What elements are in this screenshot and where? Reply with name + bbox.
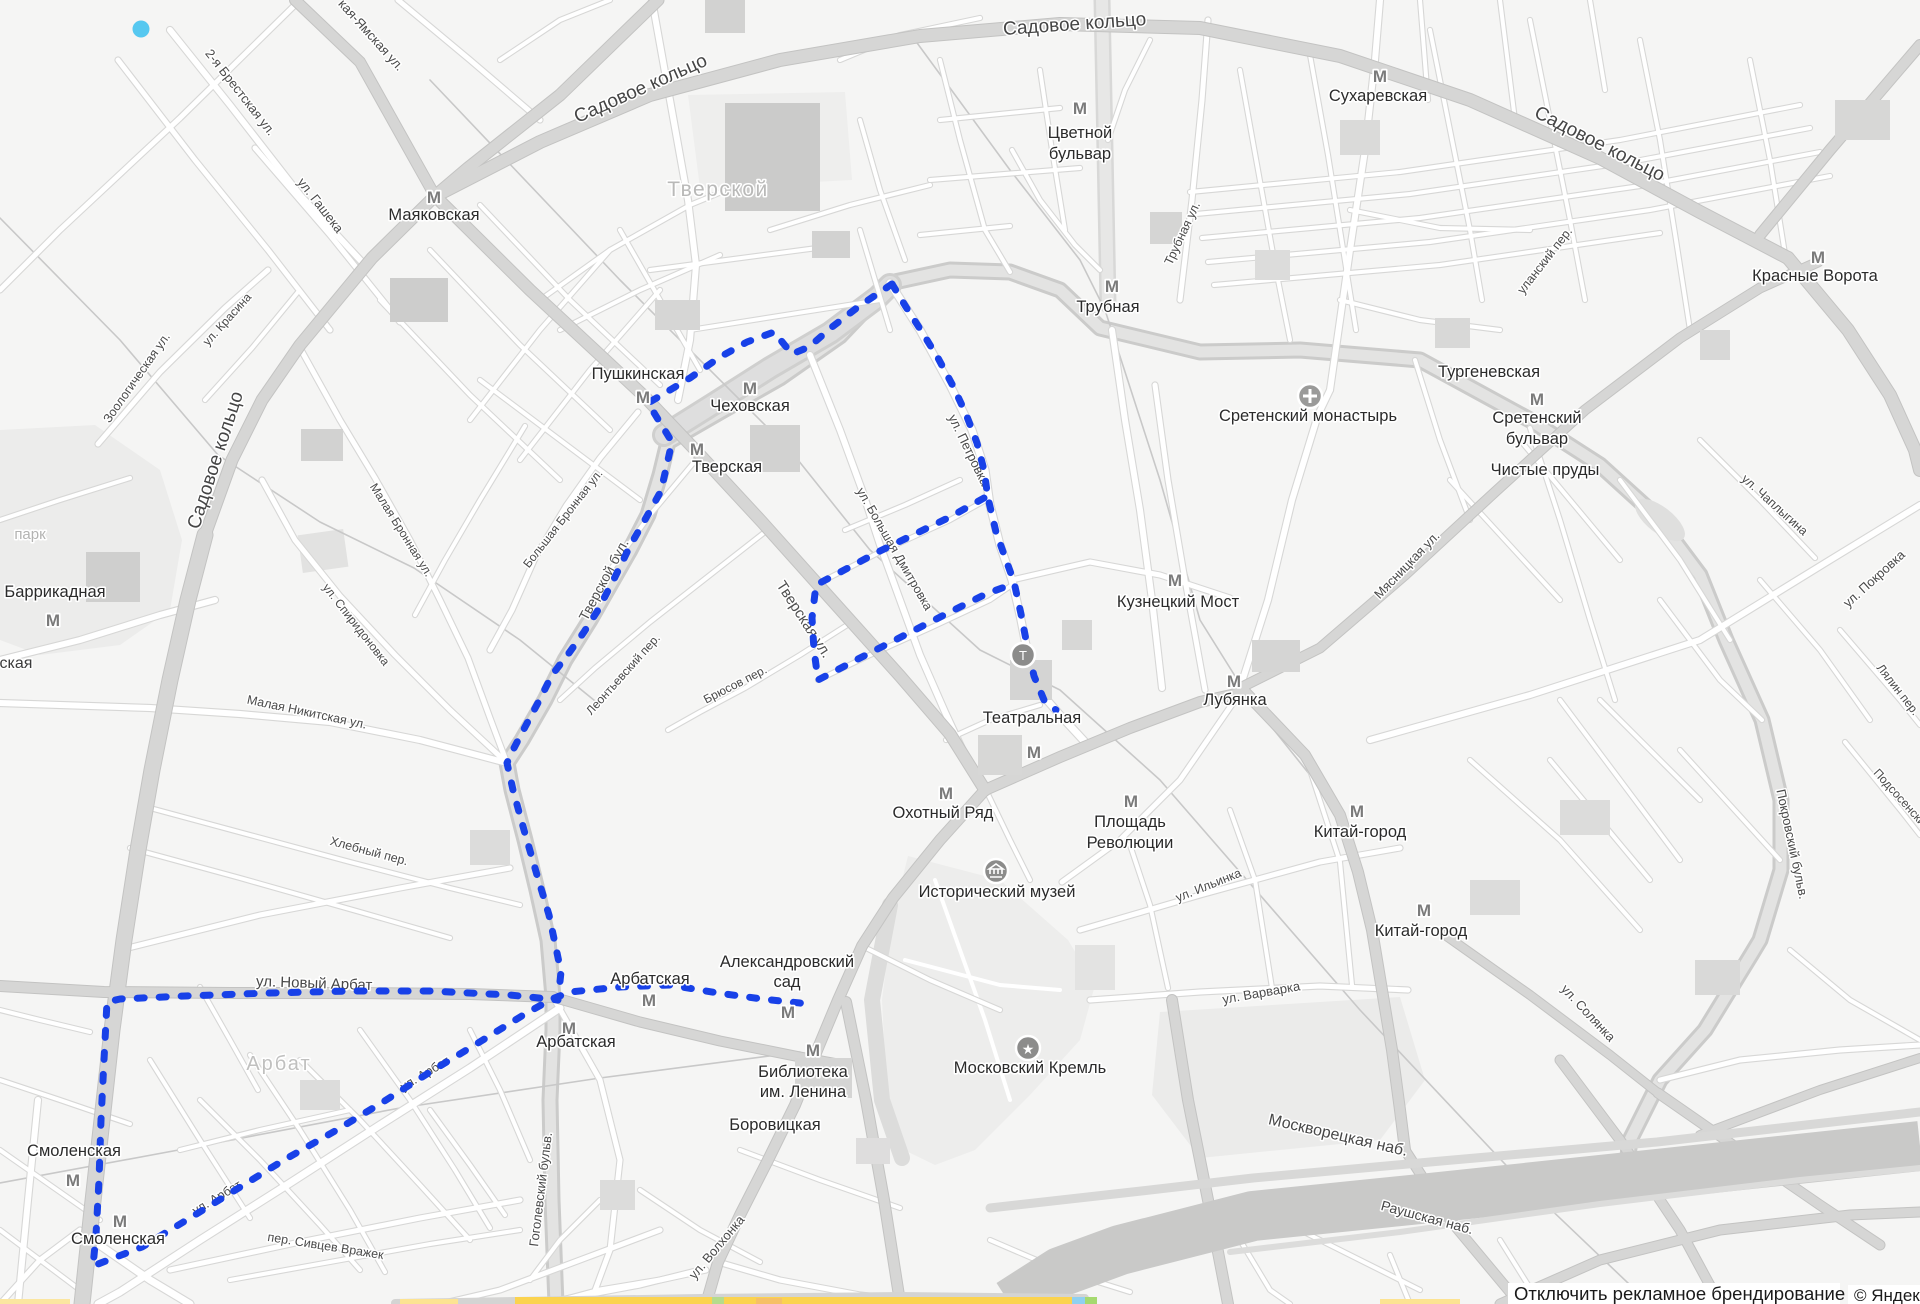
- svg-text:Т: Т: [1019, 648, 1027, 663]
- svg-text:М: М: [636, 388, 650, 407]
- svg-text:М: М: [1811, 248, 1825, 267]
- svg-text:Китай-город: Китай-город: [1314, 823, 1407, 841]
- svg-text:Театральная: Театральная: [983, 709, 1082, 727]
- svg-text:М: М: [690, 440, 704, 459]
- svg-text:М: М: [1168, 571, 1182, 590]
- svg-text:М: М: [1417, 901, 1431, 920]
- svg-text:Трубная: Трубная: [1076, 298, 1139, 316]
- svg-text:Пушкинская: Пушкинская: [592, 365, 685, 383]
- svg-text:М: М: [642, 991, 656, 1010]
- svg-text:Охотный Ряд: Охотный Ряд: [893, 804, 994, 822]
- svg-text:М: М: [1227, 672, 1241, 691]
- svg-text:Александровский: Александровский: [720, 953, 854, 971]
- svg-text:Арбат: Арбат: [246, 1053, 311, 1075]
- svg-text:М: М: [66, 1171, 80, 1190]
- svg-text:М: М: [1073, 99, 1087, 118]
- svg-text:М: М: [939, 784, 953, 803]
- svg-text:Кузнецкий Мост: Кузнецкий Мост: [1117, 593, 1240, 611]
- svg-text:Революции: Революции: [1087, 834, 1174, 852]
- svg-text:бульвар: бульвар: [1049, 145, 1111, 163]
- svg-text:М: М: [1350, 802, 1364, 821]
- svg-text:Тверской: Тверской: [667, 178, 769, 201]
- svg-text:М: М: [806, 1041, 820, 1060]
- svg-text:Чеховская: Чеховская: [710, 397, 790, 415]
- svg-text:М: М: [113, 1212, 127, 1231]
- svg-text:Цветной: Цветной: [1048, 124, 1112, 142]
- svg-text:© Яндекс: © Яндекс: [1854, 1286, 1920, 1304]
- svg-text:Чистые пруды: Чистые пруды: [1491, 461, 1600, 479]
- svg-text:Сретенский монастырь: Сретенский монастырь: [1219, 407, 1397, 425]
- svg-text:М: М: [1373, 67, 1387, 86]
- svg-text:М: М: [1105, 277, 1119, 296]
- svg-text:Сретенский: Сретенский: [1492, 409, 1581, 427]
- svg-text:Маяковская: Маяковская: [388, 206, 479, 224]
- svg-text:Боровицкая: Боровицкая: [729, 1116, 820, 1134]
- svg-text:Смоленская: Смоленская: [27, 1142, 121, 1160]
- svg-text:сад: сад: [773, 973, 800, 991]
- svg-text:Сухаревская: Сухаревская: [1329, 87, 1427, 105]
- svg-text:парк: парк: [14, 526, 46, 543]
- svg-text:Московский Кремль: Московский Кремль: [954, 1059, 1107, 1077]
- svg-text:Баррикадная: Баррикадная: [4, 583, 105, 601]
- svg-text:ская: ская: [0, 655, 32, 672]
- svg-text:★: ★: [1022, 1041, 1035, 1057]
- svg-text:Исторический музей: Исторический музей: [919, 883, 1076, 901]
- svg-text:М: М: [1124, 792, 1138, 811]
- svg-text:Арбатская: Арбатская: [610, 970, 689, 988]
- svg-text:Арбатская: Арбатская: [536, 1033, 615, 1051]
- svg-text:Тверская: Тверская: [692, 458, 762, 476]
- svg-text:бульвар: бульвар: [1506, 430, 1568, 448]
- svg-text:Китай-город: Китай-город: [1375, 922, 1468, 940]
- svg-text:им. Ленина: им. Ленина: [760, 1083, 847, 1101]
- svg-text:Библиотека: Библиотека: [758, 1063, 849, 1081]
- svg-text:М: М: [427, 188, 441, 207]
- svg-text:М: М: [781, 1003, 795, 1022]
- svg-text:Тургеневская: Тургеневская: [1438, 363, 1540, 381]
- svg-text:Отключить рекламное брендирова: Отключить рекламное брендирование: [1514, 1283, 1845, 1304]
- svg-text:Площадь: Площадь: [1094, 813, 1166, 831]
- svg-text:Красные Ворота: Красные Ворота: [1752, 267, 1878, 285]
- svg-text:М: М: [743, 379, 757, 398]
- svg-text:М: М: [1530, 390, 1544, 409]
- svg-text:М: М: [46, 611, 60, 630]
- svg-text:Лубянка: Лубянка: [1203, 691, 1267, 709]
- svg-text:М: М: [1027, 743, 1041, 762]
- svg-text:Смоленская: Смоленская: [71, 1230, 165, 1248]
